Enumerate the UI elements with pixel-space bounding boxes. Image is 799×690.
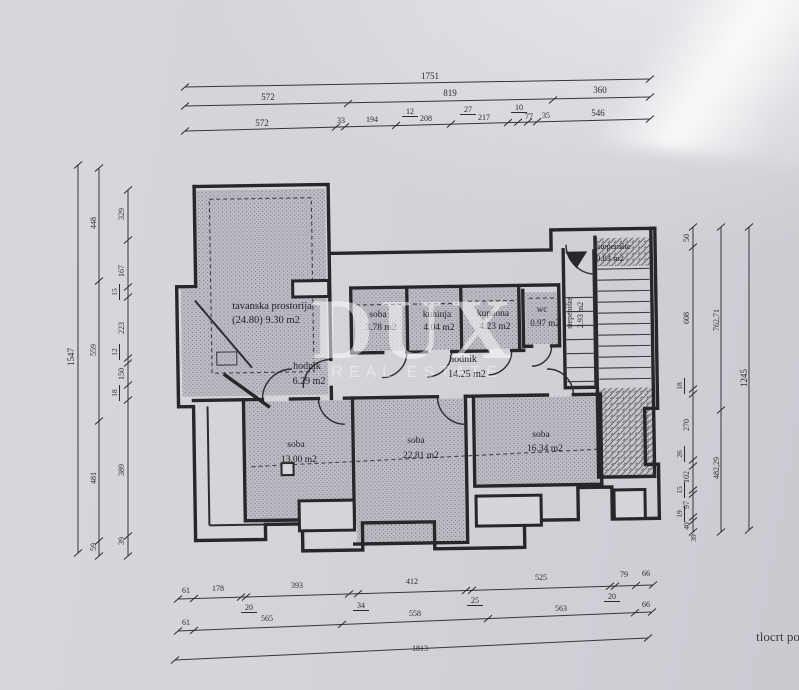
room-label: 6.29 m2 — [293, 376, 326, 387]
dimension-label: 27 — [464, 105, 472, 114]
dimension-label: 66 — [642, 569, 650, 578]
dimension-label: 559 — [89, 344, 98, 356]
dimension-label: 167 — [117, 265, 126, 277]
dimension-label: 223 — [117, 322, 126, 334]
room-label: 0.97 m2 — [530, 318, 560, 328]
room-label: tavanska prostorija — [232, 301, 312, 312]
dimension-label: 270 — [682, 419, 691, 431]
dimension-label: 525 — [535, 573, 547, 582]
room-label: 22.81 m2 — [403, 451, 439, 461]
plan-caption: tlocrt po — [756, 629, 799, 644]
dimension-label: 565 — [261, 614, 273, 623]
dimension-label: 77 — [525, 112, 533, 121]
tread-line — [599, 367, 651, 368]
dimension-label: 217 — [478, 113, 490, 122]
dimension-label: 194 — [366, 115, 378, 124]
dimension-label: 35 — [542, 111, 550, 120]
tread-line — [598, 290, 650, 291]
dimension-label: 1547 — [66, 348, 76, 367]
dimension-label: 389 — [117, 464, 126, 476]
dimension-label: 329 — [117, 208, 126, 220]
dimension-label: 572 — [261, 92, 275, 102]
dimension-label: 15 — [110, 288, 119, 296]
dimension-label: 102 — [682, 471, 691, 483]
dimension-label: 10 — [515, 103, 523, 112]
door-arc-wc — [532, 346, 552, 366]
dimension-label: 178 — [212, 584, 224, 593]
room-label: (24.80) 9.30 m2 — [232, 315, 300, 326]
window-bay-left — [299, 500, 354, 531]
room-label: soba — [532, 430, 550, 440]
stairs-direction-arrow — [565, 251, 587, 268]
dimension-label: 558 — [409, 609, 421, 618]
dimension-label: 20 — [245, 603, 253, 612]
dimension-label: 393 — [291, 581, 303, 590]
dimension-label: 79 — [620, 570, 628, 579]
dimension-label: 34 — [357, 601, 365, 610]
dimension-label: 12 — [406, 107, 414, 116]
floor-plan-drawing: 1751572819360572331941220827217107735546… — [0, 0, 799, 690]
dim-tick — [344, 100, 352, 107]
dimension-label: 608 — [682, 312, 691, 324]
room-label: 9.83 m2 — [596, 253, 624, 263]
dimension-label: 39 — [117, 537, 126, 545]
dimension-label: 762,71 — [712, 309, 721, 331]
dimension-label: 563 — [555, 604, 567, 613]
dimension-label: 66 — [642, 600, 650, 609]
tread-line — [597, 268, 649, 269]
dimension-label: 33 — [337, 116, 345, 125]
tread-line — [599, 378, 651, 379]
room-label: soba — [287, 440, 305, 450]
watermark: DUX REAL ESTATE — [311, 281, 518, 381]
tread-line — [599, 356, 651, 357]
dimension-label: 481 — [89, 472, 98, 484]
dimension-label: 59 — [89, 543, 98, 551]
dimension-label: 12 — [110, 348, 119, 356]
dimension-label: 50 — [682, 234, 691, 242]
dimension-label: 15 — [675, 486, 684, 494]
tread-line — [598, 334, 650, 335]
dimension-label: 19 — [675, 510, 684, 518]
dimension-label: 18 — [675, 382, 684, 390]
dimension-label: 546 — [591, 108, 605, 118]
dimension-label: 1245 — [739, 369, 749, 388]
dimension-label: 39 — [689, 534, 698, 542]
dimension-label: 819 — [443, 88, 457, 98]
dimension-label: 97 — [682, 501, 691, 509]
room-label: 13.00 m2 — [281, 455, 317, 465]
room-label: soba — [407, 436, 425, 446]
dimension-label: 1813 — [412, 644, 428, 653]
dimension-label: 572 — [255, 118, 269, 128]
door-arc-stairs-lower — [547, 369, 573, 395]
room-label: 16.34 m2 — [527, 444, 563, 454]
dimension-label: 20 — [608, 592, 616, 601]
dim-tick — [549, 97, 557, 104]
watermark-subtitle: REAL ESTATE — [331, 364, 503, 381]
tread-line — [599, 345, 651, 346]
room-label: 2.93 m2 — [576, 302, 585, 328]
window-bay-right — [614, 489, 645, 518]
dimension-label: 61 — [182, 586, 190, 595]
tread-line — [598, 301, 650, 302]
watermark-brand: DUX — [311, 281, 518, 377]
dimension-label: 482,29 — [712, 457, 721, 479]
room-label: stepenište — [597, 241, 631, 251]
room-fill-soba-2281 — [354, 398, 465, 542]
dimension-label: 40 — [682, 522, 691, 530]
room-label: wc — [537, 304, 548, 314]
tread-line — [598, 279, 650, 280]
dimension-label: 150 — [117, 368, 126, 380]
dimension-label: 448 — [89, 217, 98, 229]
dimension-label: 360 — [593, 85, 607, 95]
tread-line — [598, 323, 650, 324]
tread-line — [598, 312, 650, 313]
window-bay-middle — [476, 495, 541, 526]
dimension-label: 18 — [110, 389, 119, 397]
dimension-label: 25 — [471, 596, 479, 605]
dimension-label: 412 — [406, 577, 418, 586]
scanned-floorplan-page: 1751572819360572331941220827217107735546… — [0, 0, 799, 690]
dimension-label: 61 — [182, 618, 190, 627]
dimension-label: 26 — [675, 450, 684, 458]
room-fill-soba-1634 — [475, 396, 599, 484]
dim-lines-left — [78, 165, 128, 556]
dimension-label: 208 — [420, 114, 432, 123]
dimension-label: 1751 — [421, 71, 439, 81]
room-label: stepenište — [565, 297, 574, 329]
